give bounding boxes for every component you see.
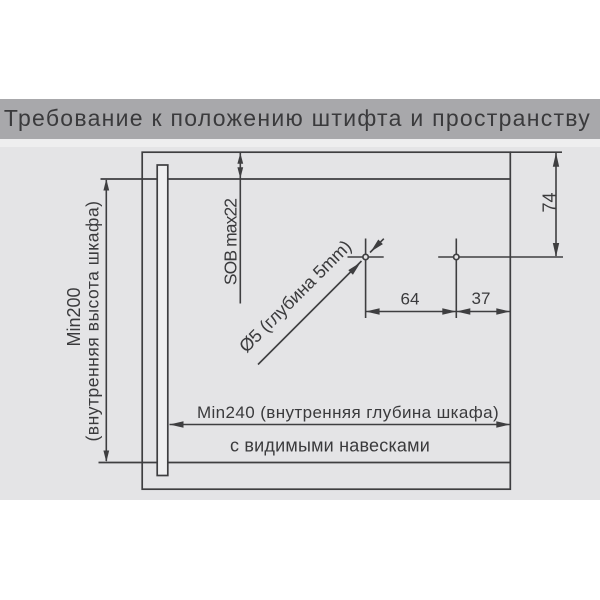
svg-text:с видимыми навесками: с видимыми навесками bbox=[230, 436, 430, 456]
svg-text:Min240 (внутренняя глубина шка: Min240 (внутренняя глубина шкафа) bbox=[197, 403, 499, 422]
svg-text:64: 64 bbox=[401, 290, 420, 309]
svg-text:74: 74 bbox=[540, 192, 560, 212]
svg-text:(внутренняя высота шкафа): (внутренняя высота шкафа) bbox=[83, 200, 103, 441]
svg-text:Min200: Min200 bbox=[64, 287, 84, 346]
svg-text:37: 37 bbox=[472, 289, 491, 308]
svg-text:SOB max22: SOB max22 bbox=[221, 199, 241, 285]
svg-text:Требование к положению штифта: Требование к положению штифта и простран… bbox=[4, 105, 591, 131]
